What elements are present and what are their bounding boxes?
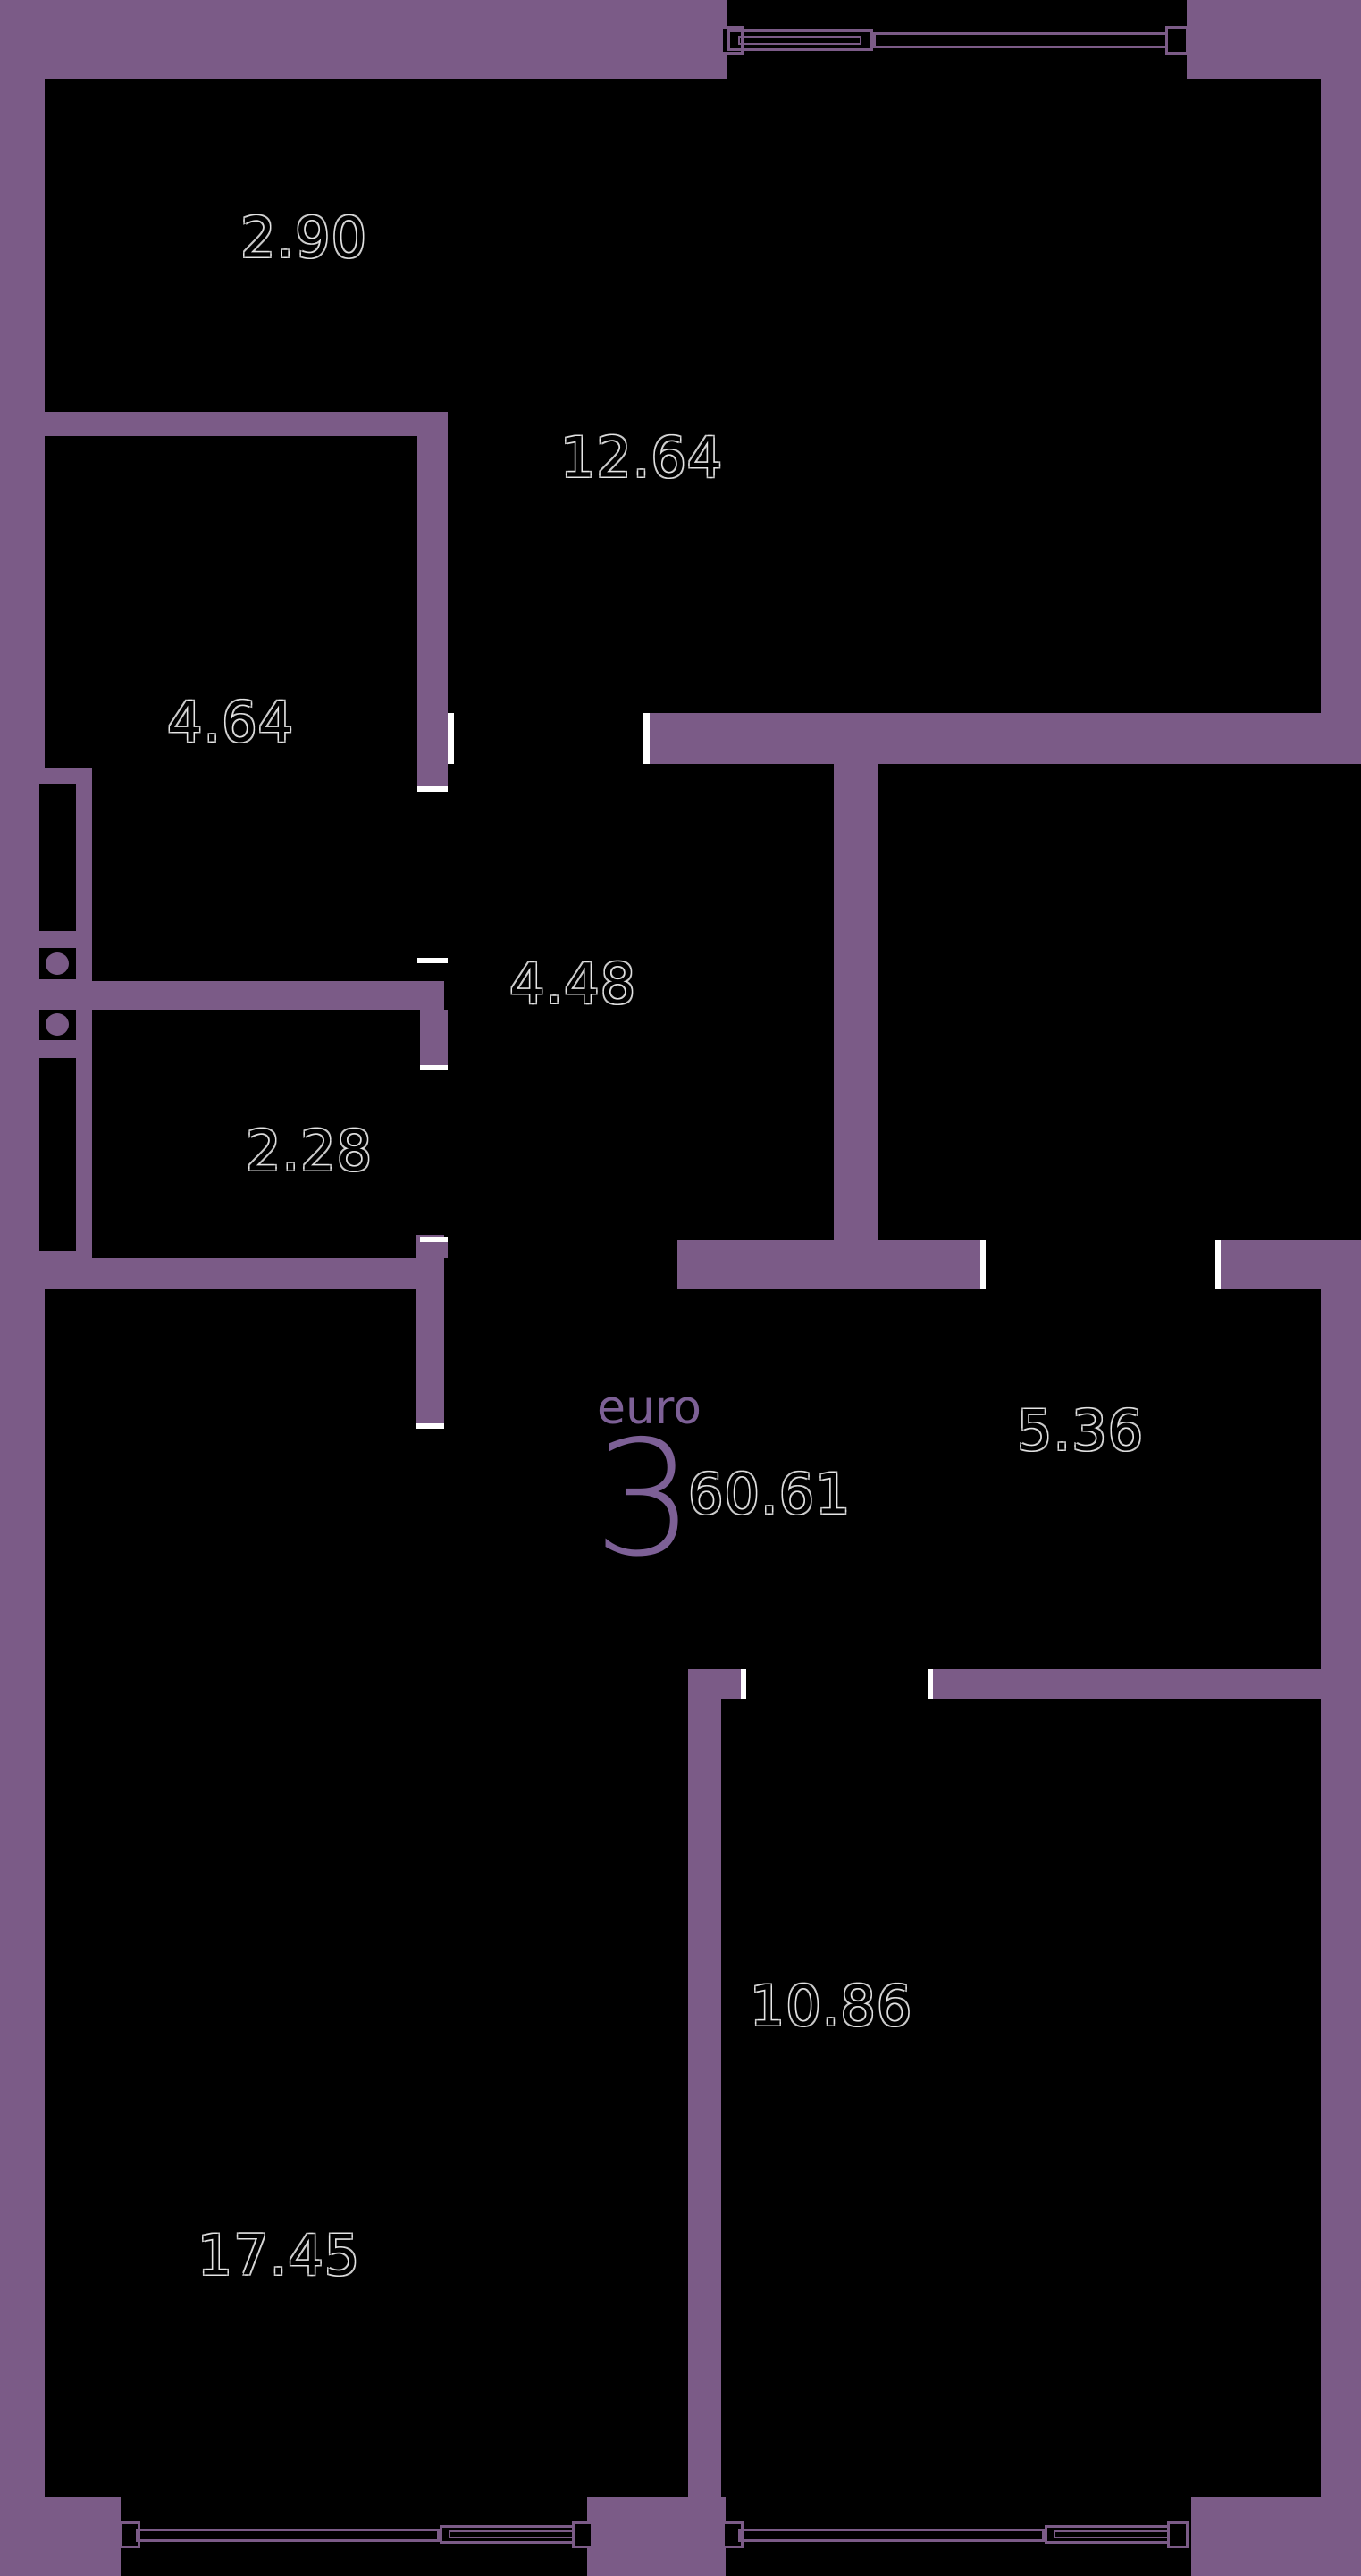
interior-bottom-block [45,1669,1321,2497]
window-end-cap-icon [572,2521,593,2548]
door-jamb-tick [420,1237,448,1242]
room-area-label-bottom-left: 17.45 [197,2223,361,2288]
door-jamb-tick [420,1065,448,1070]
window-symbol-bottomright-line [738,2529,1045,2542]
window-end-cap-icon [1165,26,1189,55]
door-jamb-tick [980,1240,986,1289]
unit-total-area: 60.61 [688,1462,852,1527]
left-wall-niche-upper [39,784,76,931]
room-area-label-bottom-right: 10.86 [750,1974,913,2039]
window-symbol-top-line [873,32,1172,48]
wall-corridor-bottom-left [677,1240,986,1289]
window-pane-icon [738,36,861,45]
door-jamb-tick [416,1423,444,1429]
vent-circle-icon-upper [46,952,69,975]
room-area-label-corridor-right: 5.36 [1017,1398,1144,1464]
interior-top-block [45,79,1321,713]
window-symbol-bottomleft-line [136,2529,440,2542]
door-jamb-tick [741,1669,746,1699]
wall-room1264-bottom [650,713,1323,764]
room-area-label-top-right: 12.64 [560,425,724,491]
window-end-cap-icon [1167,2521,1189,2548]
wall-top-band-left [0,0,727,79]
wall-divider-1745-1086 [688,1669,721,2576]
floor-plan: 2.90 12.64 4.64 4.48 2.28 5.36 10.86 17.… [0,0,1361,2576]
wall-vert-room464-hall [417,412,448,792]
door-jamb-tick [928,1669,933,1699]
wall-stub-below-228 [416,1235,444,1429]
door-jamb-tick [1215,1240,1221,1289]
wall-balcony-bottom [0,412,444,436]
unit-rooms-count: 3 [593,1420,694,1579]
wall-outer-right-lower [1321,1289,1361,2576]
door-jamb-tick [417,958,448,963]
room-area-label-hallway: 4.48 [509,952,636,1017]
window-pane-icon [1054,2530,1180,2538]
wall-room1086-top [933,1669,1321,1699]
wall-outer-right-upper [1321,0,1361,764]
door-jamb-tick [448,713,454,764]
wall-bottom-left [0,2497,121,2576]
wall-bottom-middle [588,2497,726,2576]
room-area-label-balcony: 2.90 [240,206,367,271]
door-jamb-tick [643,713,650,764]
wall-hall-corridor-divider [834,762,878,1242]
vent-circle-icon-lower [46,1013,69,1036]
wall-corridor-bottom-right [1215,1240,1361,1289]
room-area-label-bath: 2.28 [246,1119,373,1184]
room-area-label-mid-left: 4.64 [167,690,294,755]
window-pane-icon [449,2530,576,2538]
door-jamb-tick [417,786,448,792]
wall-bottom-right [1191,2497,1361,2576]
wall-room228-right-upper [420,1010,448,1070]
left-wall-niche-lower [39,1058,76,1251]
